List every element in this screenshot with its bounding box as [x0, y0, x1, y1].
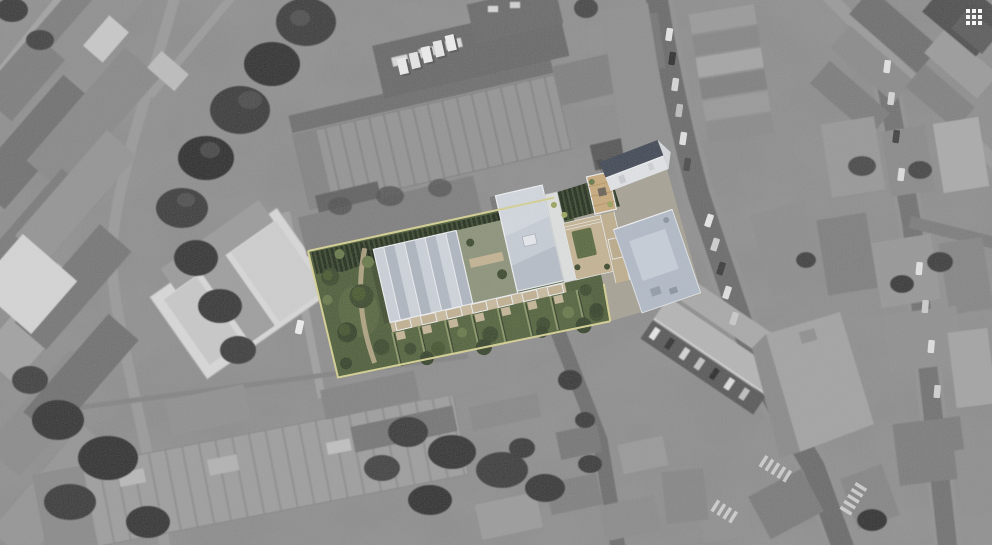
aerial-view: [0, 0, 992, 545]
aerial-photo-canvas: [0, 0, 992, 545]
apps-grid-button[interactable]: [962, 5, 986, 29]
grid-3x3-icon: [966, 9, 982, 25]
